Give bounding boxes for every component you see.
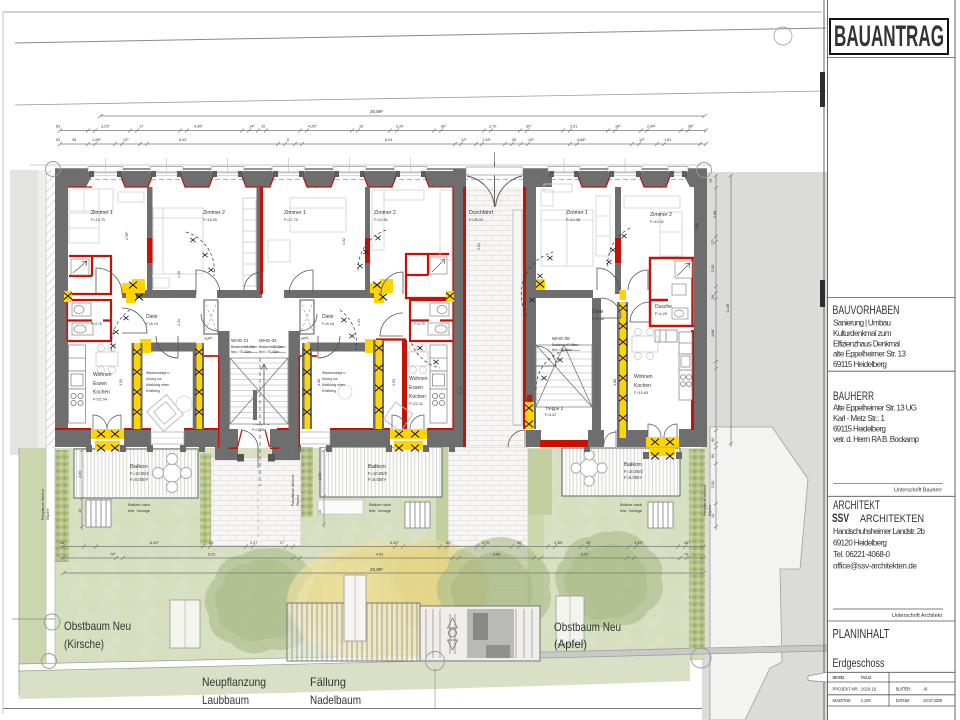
svg-text:3,51: 3,51 xyxy=(570,125,577,129)
svg-text:69115 Heidelberg: 69115 Heidelberg xyxy=(833,360,887,369)
svg-text:12⁵: 12⁵ xyxy=(123,138,129,142)
svg-text:ARCHITEKT: ARCHITEKT xyxy=(833,498,880,512)
svg-text:Essen: Essen xyxy=(409,385,423,391)
svg-text:30⁷: 30⁷ xyxy=(517,541,523,545)
svg-text:F=13.79: F=13.79 xyxy=(91,218,105,222)
svg-text:F=10.81: F=10.81 xyxy=(374,218,388,222)
svg-text:2,36⁵: 2,36⁵ xyxy=(554,541,563,545)
svg-text:4,25⁵: 4,25⁵ xyxy=(308,125,317,129)
svg-text:3,88: 3,88 xyxy=(613,379,617,386)
svg-text:Zimmer 1: Zimmer 1 xyxy=(284,210,306,216)
svg-text:F=8.15: F=8.15 xyxy=(146,322,158,326)
svg-text:BAUHERR: BAUHERR xyxy=(833,389,874,403)
svg-text:Balkon: Balkon xyxy=(130,464,148,470)
svg-text:6,32⁵: 6,32⁵ xyxy=(150,541,159,545)
svg-text:2,70: 2,70 xyxy=(489,125,496,129)
svg-text:16⁵: 16⁵ xyxy=(615,125,621,129)
svg-text:4,85: 4,85 xyxy=(493,553,500,557)
svg-text:63: 63 xyxy=(56,138,60,142)
svg-text:Diele: Diele xyxy=(322,314,334,320)
svg-text:10: 10 xyxy=(261,125,265,129)
svg-text:Diele: Diele xyxy=(146,314,158,320)
svg-text:BLATTER:: BLATTER: xyxy=(896,687,911,692)
svg-text:35: 35 xyxy=(512,138,516,142)
svg-text:PROJEKT-NR.:: PROJEKT-NR.: xyxy=(833,687,860,692)
svg-text:F=18.09: F=18.09 xyxy=(203,218,217,222)
svg-text:17: 17 xyxy=(139,125,143,129)
svg-text:3,08: 3,08 xyxy=(317,379,321,386)
svg-text:F=4.75: F=4.75 xyxy=(91,322,102,326)
svg-text:Diele: Diele xyxy=(592,309,604,315)
svg-text:Einteilung: Einteilung xyxy=(322,389,336,393)
svg-text:Wohnen: Wohnen xyxy=(409,376,428,382)
svg-text:60: 60 xyxy=(711,454,715,458)
svg-text:hist. Vorlage: hist. Vorlage xyxy=(620,508,643,513)
svg-text:Balkon: Balkon xyxy=(368,464,386,470)
svg-text:F=4.75: F=4.75 xyxy=(414,322,425,326)
svg-text:14⁵: 14⁵ xyxy=(249,125,255,129)
svg-text:Glyzine: Glyzine xyxy=(708,505,712,516)
svg-text:Kochen: Kochen xyxy=(93,390,110,396)
svg-text:3,53: 3,53 xyxy=(392,379,396,386)
svg-text:2,47: 2,47 xyxy=(250,541,257,545)
svg-text:3,99⁵: 3,99⁵ xyxy=(634,541,643,545)
svg-text:2,88: 2,88 xyxy=(695,223,699,230)
svg-text:SSV: SSV xyxy=(832,511,849,525)
svg-text:60⁷: 60⁷ xyxy=(446,541,452,545)
svg-text:6,32⁵: 6,32⁵ xyxy=(390,541,399,545)
svg-text:Nadelbaum: Nadelbaum xyxy=(310,693,361,707)
svg-text:Laubbaum: Laubbaum xyxy=(202,693,249,707)
svg-text:6,03: 6,03 xyxy=(179,138,186,142)
svg-text:vetr. d. Herrn RA B. Bockamp: vetr. d. Herrn RA B. Bockamp xyxy=(833,435,920,444)
svg-text:11,08: 11,08 xyxy=(726,304,730,313)
svg-text:63: 63 xyxy=(60,541,64,545)
svg-text:Wanderanlage u.: Wanderanlage u. xyxy=(146,371,170,375)
svg-text:F=4.02: F=4.02 xyxy=(545,413,556,417)
svg-text:F=22.41: F=22.41 xyxy=(409,402,423,406)
svg-text:Unterschrift Bauherr: Unterschrift Bauherr xyxy=(894,488,942,494)
svg-text:F=17.70: F=17.70 xyxy=(284,218,298,222)
svg-text:Zimmer 2: Zimmer 2 xyxy=(374,210,396,216)
svg-text:3,24: 3,24 xyxy=(396,125,403,129)
svg-text:26: 26 xyxy=(711,295,715,299)
svg-text:Sanierung | Umbau: Sanierung | Umbau xyxy=(833,319,891,328)
svg-text:Tel. 06221-4068-0: Tel. 06221-4068-0 xyxy=(833,550,891,559)
svg-text:15: 15 xyxy=(359,125,363,129)
svg-text:1,30: 1,30 xyxy=(177,271,181,278)
svg-text:14⁵: 14⁵ xyxy=(528,138,534,142)
svg-text:F=5.00m²: F=5.00m² xyxy=(624,475,643,480)
svg-text:38⁵: 38⁵ xyxy=(688,125,694,129)
svg-text:Glyzine: Glyzine xyxy=(296,495,300,506)
svg-text:Umzug zur: Umzug zur xyxy=(146,377,162,381)
svg-text:Obstbaum Neu: Obstbaum Neu xyxy=(64,619,131,633)
svg-text:69115 Heidelberg: 69115 Heidelberg xyxy=(833,425,886,434)
svg-text:1,28⁵: 1,28⁵ xyxy=(92,138,101,142)
svg-text:69120 Heidelberg: 69120 Heidelberg xyxy=(833,539,887,548)
svg-text:73: 73 xyxy=(684,553,688,557)
svg-text:79⁵: 79⁵ xyxy=(110,553,116,557)
svg-text:DATUM:: DATUM: xyxy=(896,698,910,703)
svg-text:MAZSTAB:: MAZSTAB: xyxy=(833,698,852,703)
svg-text:Umzug zur: Umzug zur xyxy=(322,377,338,381)
svg-text:F=10.00/2: F=10.00/2 xyxy=(624,469,644,474)
svg-text:38⁵: 38⁵ xyxy=(684,541,690,545)
svg-text:27: 27 xyxy=(280,541,284,545)
svg-text:63: 63 xyxy=(56,125,60,129)
svg-text:4,68⁵: 4,68⁵ xyxy=(577,138,586,142)
svg-text:Balkon: Balkon xyxy=(624,462,642,468)
svg-text:Zimmer 1: Zimmer 1 xyxy=(566,210,588,216)
svg-text:Obstbaum Neu: Obstbaum Neu xyxy=(554,620,621,634)
svg-text:2,50⁵: 2,50⁵ xyxy=(125,231,129,240)
svg-text:10: 10 xyxy=(318,510,322,514)
svg-text:1,28⁵: 1,28⁵ xyxy=(482,138,491,142)
svg-text:A3: A3 xyxy=(923,687,928,692)
svg-text:F=26.93: F=26.93 xyxy=(469,218,483,222)
svg-text:hist. Vorlage: hist. Vorlage xyxy=(369,508,392,513)
svg-text:4,02: 4,02 xyxy=(342,238,346,245)
svg-text:2,70: 2,70 xyxy=(482,541,489,545)
svg-text:Durchfahrt: Durchfahrt xyxy=(469,210,494,216)
svg-text:Bestand=45.03m²: Bestand=45.03m² xyxy=(231,345,256,349)
svg-text:F=22.04: F=22.04 xyxy=(93,398,107,402)
svg-text:Parkpflanze blühend: Parkpflanze blühend xyxy=(703,485,707,516)
svg-text:Essen: Essen xyxy=(93,381,107,387)
svg-text:2,50: 2,50 xyxy=(711,265,715,272)
svg-text:Kulturdenkmal zum: Kulturdenkmal zum xyxy=(833,329,892,338)
svg-text:4,92: 4,92 xyxy=(376,553,383,557)
svg-text:Handschuhsheimer Landstr. 2b: Handschuhsheimer Landstr. 2b xyxy=(833,527,926,536)
svg-text:4,35⁵: 4,35⁵ xyxy=(194,125,203,129)
svg-text:F=4.25: F=4.25 xyxy=(655,312,667,316)
svg-text:2,00: 2,00 xyxy=(78,471,82,478)
svg-text:1,31: 1,31 xyxy=(357,319,361,326)
svg-text:F=14.38: F=14.38 xyxy=(566,218,580,222)
svg-text:Karl - Metz Str.: 1: Karl - Metz Str.: 1 xyxy=(833,414,886,423)
svg-text:Alte Eppelheimer Str. 13 UG: Alte Eppelheimer Str. 13 UG xyxy=(833,404,917,413)
svg-text:Erdgeschoss: Erdgeschoss xyxy=(833,656,885,670)
svg-text:3,53: 3,53 xyxy=(119,379,123,386)
svg-text:Dusche: Dusche xyxy=(655,304,672,310)
svg-text:F=15.83: F=15.83 xyxy=(634,391,648,395)
svg-text:F=11.64: F=11.64 xyxy=(252,428,264,432)
svg-text:Wohnen: Wohnen xyxy=(634,374,653,380)
svg-text:4,01: 4,01 xyxy=(477,243,481,250)
svg-text:F=5.00m²: F=5.00m² xyxy=(368,477,387,482)
svg-text:30⁷: 30⁷ xyxy=(526,125,532,129)
svg-text:2,00: 2,00 xyxy=(318,473,322,480)
svg-text:10: 10 xyxy=(78,509,82,513)
svg-text:Kochen: Kochen xyxy=(634,383,651,389)
svg-text:5,20: 5,20 xyxy=(208,553,215,557)
svg-text:Neu =70.43m²: Neu =70.43m² xyxy=(259,350,279,354)
svg-text:F=8.16: F=8.16 xyxy=(322,322,334,326)
svg-text:Zimmer 1: Zimmer 1 xyxy=(91,210,113,216)
svg-text:Zimmer 2: Zimmer 2 xyxy=(650,212,672,218)
svg-text:Wanderanlage u.: Wanderanlage u. xyxy=(322,371,346,375)
svg-text:2,00: 2,00 xyxy=(711,481,715,488)
svg-text:3,88: 3,88 xyxy=(711,330,715,337)
svg-text:23.07.2029: 23.07.2029 xyxy=(923,698,943,703)
svg-text:PLANINHALT: PLANINHALT xyxy=(833,627,890,641)
svg-text:Effizienzhaus Denkmal: Effizienzhaus Denkmal xyxy=(833,339,900,348)
svg-text:alte Eppelheimer Str. 13: alte Eppelheimer Str. 13 xyxy=(833,350,907,359)
svg-text:WHG 02: WHG 02 xyxy=(259,338,277,343)
svg-text:12⁵: 12⁵ xyxy=(461,138,467,142)
svg-text:1,81: 1,81 xyxy=(664,138,671,142)
svg-text:Unterschrift Architekt: Unterschrift Architekt xyxy=(892,613,943,619)
svg-text:26,89⁵: 26,89⁵ xyxy=(370,109,383,114)
svg-text:26: 26 xyxy=(209,541,213,545)
svg-text:Glyzine: Glyzine xyxy=(46,509,50,520)
svg-text:Zimmer 2: Zimmer 2 xyxy=(203,210,225,216)
svg-text:1:100: 1:100 xyxy=(861,698,872,703)
svg-text:F=10.01: F=10.01 xyxy=(650,220,664,224)
svg-text:Neupflanzung: Neupflanzung xyxy=(202,675,266,689)
svg-text:Abbildung ehem.: Abbildung ehem. xyxy=(146,383,170,387)
svg-text:Abbildung ehem.: Abbildung ehem. xyxy=(322,383,346,387)
svg-text:Parkpflanze blühend: Parkpflanze blühend xyxy=(41,489,45,520)
svg-text:office@ssv-architekten.de: office@ssv-architekten.de xyxy=(833,562,918,571)
svg-text:WHG 01: WHG 01 xyxy=(231,338,249,343)
svg-text:hist. Vorlage: hist. Vorlage xyxy=(128,508,151,513)
svg-text:(Apfel): (Apfel) xyxy=(554,637,587,651)
svg-text:F=10.00/2: F=10.00/2 xyxy=(130,471,150,476)
svg-text:Treppe 2: Treppe 2 xyxy=(545,406,564,411)
svg-text:26: 26 xyxy=(586,541,590,545)
svg-text:60: 60 xyxy=(711,438,715,442)
svg-text:Balkon nach: Balkon nach xyxy=(128,502,150,507)
svg-text:6,04: 6,04 xyxy=(385,138,392,142)
svg-text:6: 6 xyxy=(287,138,289,142)
svg-text:Balkon nach: Balkon nach xyxy=(620,502,642,507)
svg-text:Wohnen: Wohnen xyxy=(93,372,112,378)
svg-text:Parkpflanze blühend: Parkpflanze blühend xyxy=(291,475,295,506)
svg-text:5,20: 5,20 xyxy=(581,553,588,557)
svg-text:BEARB:: BEARB: xyxy=(833,675,845,680)
svg-text:70: 70 xyxy=(709,179,713,183)
svg-text:Bestand=45.03m²: Bestand=45.03m² xyxy=(259,345,284,349)
svg-text:F=5.00m²: F=5.00m² xyxy=(130,477,149,482)
svg-text:26,89⁵: 26,89⁵ xyxy=(370,567,383,572)
svg-text:Neu =70.43m²: Neu =70.43m² xyxy=(231,350,251,354)
svg-text:BAUVORHABEN: BAUVORHABEN xyxy=(833,303,900,317)
svg-text:1,31: 1,31 xyxy=(177,319,181,326)
svg-text:(Kirsche): (Kirsche) xyxy=(64,637,104,651)
svg-text:F.S./U.Z.: F.S./U.Z. xyxy=(861,675,872,680)
svg-text:17⁵: 17⁵ xyxy=(711,239,715,245)
svg-text:Fällung: Fällung xyxy=(310,675,346,689)
svg-text:2,94⁵: 2,94⁵ xyxy=(647,125,656,129)
svg-text:Kochen: Kochen xyxy=(409,394,426,400)
svg-text:Balkon nach: Balkon nach xyxy=(369,502,391,507)
svg-text:3,23⁵: 3,23⁵ xyxy=(101,125,110,129)
svg-text:ARCHITEKTEN: ARCHITEKTEN xyxy=(860,513,924,525)
svg-text:60⁷: 60⁷ xyxy=(441,125,447,129)
svg-text:2,88: 2,88 xyxy=(713,211,717,218)
svg-text:Einteilung: Einteilung xyxy=(146,389,160,393)
svg-text:BAUANTRAG: BAUANTRAG xyxy=(834,20,944,53)
svg-text:WHG 09: WHG 09 xyxy=(552,336,570,341)
svg-text:2029-16: 2029-16 xyxy=(861,687,877,692)
svg-text:12⁵: 12⁵ xyxy=(639,138,645,142)
svg-text:Bestand =47.96m²: Bestand =47.96m² xyxy=(552,343,578,347)
svg-text:3,10: 3,10 xyxy=(459,387,463,394)
svg-text:F=10.00/2: F=10.00/2 xyxy=(368,471,388,476)
svg-text:35: 35 xyxy=(72,138,76,142)
